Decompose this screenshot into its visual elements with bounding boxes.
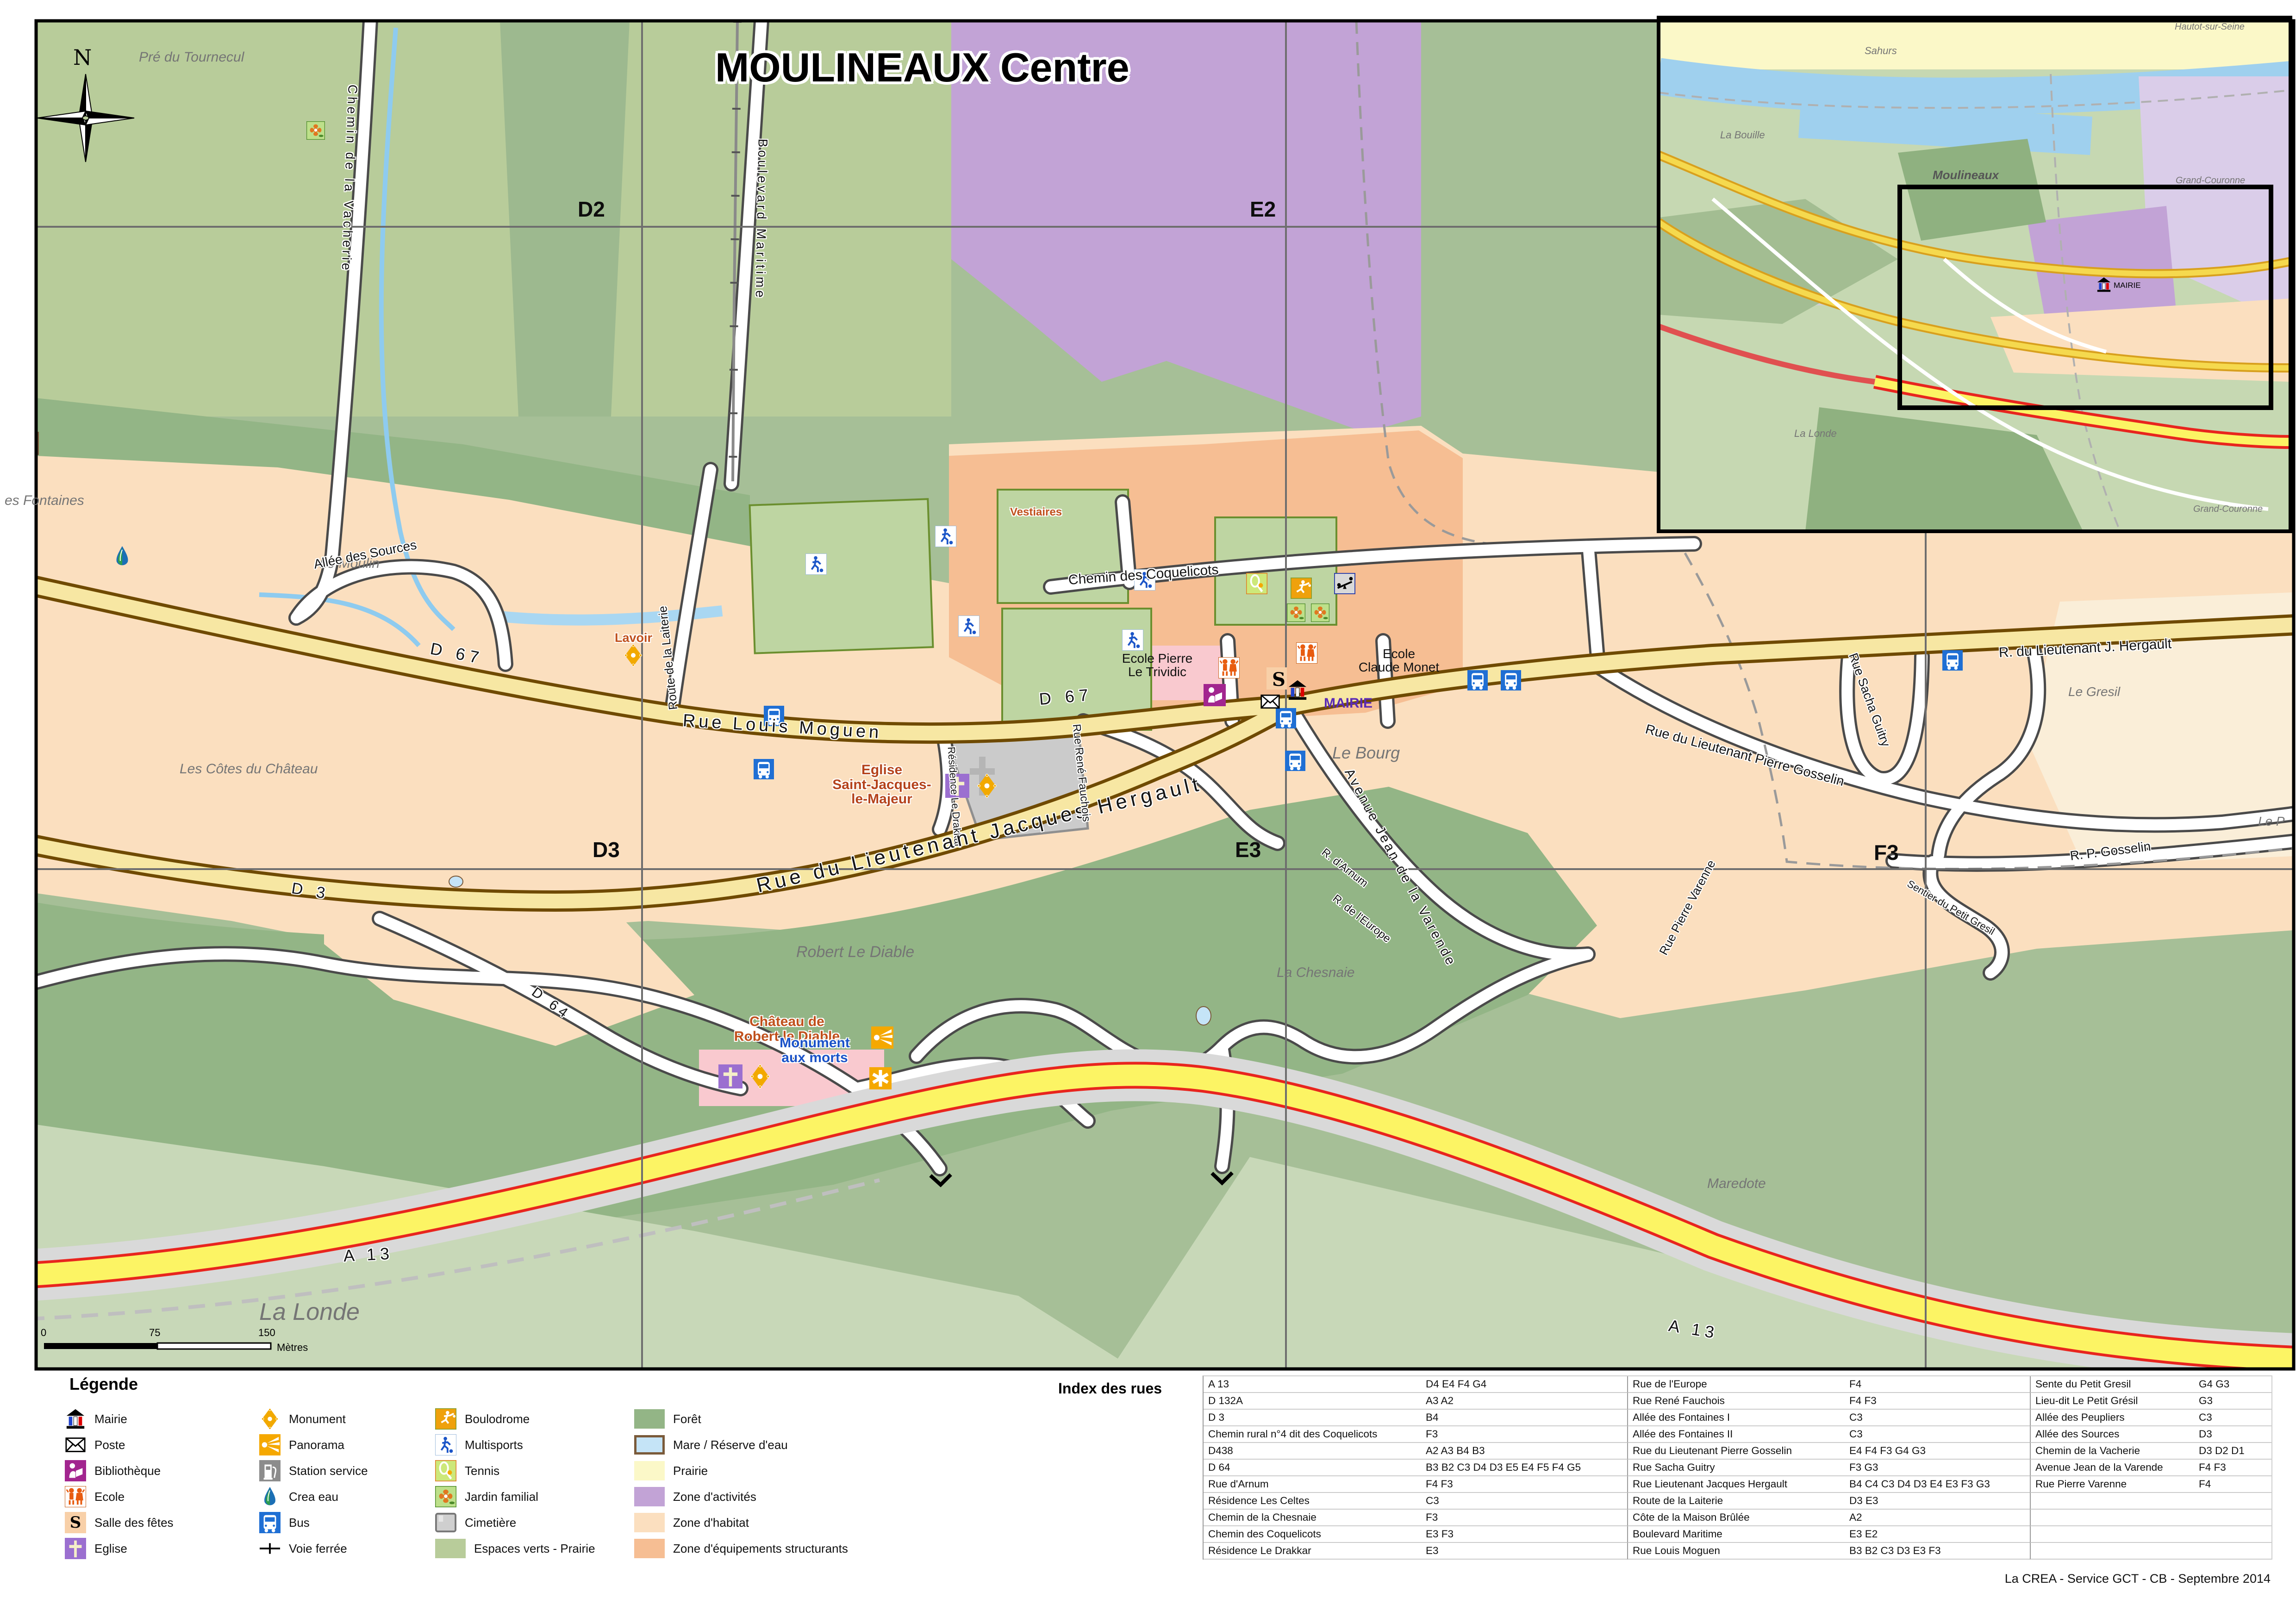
- legend-label: Ecole: [94, 1490, 125, 1504]
- index-name: Lieu-dit Le Petit Grésil: [2030, 1393, 2194, 1410]
- legend-label: Salle des fêtes: [94, 1516, 174, 1530]
- inset-mairie-label: MAIRIE: [2114, 281, 2141, 290]
- poi-monument-line1: Monument: [759, 1036, 870, 1051]
- legend-label: Poste: [94, 1438, 125, 1452]
- inset-moulineaux: Moulineaux: [1933, 169, 1999, 181]
- index-refs: B4: [1421, 1410, 1627, 1426]
- legend-item-panorama: Panorama: [259, 1432, 435, 1458]
- foret-swatch: [634, 1409, 665, 1429]
- poi-mairie-label: MAIRIE: [1324, 696, 1373, 711]
- index-name: Rue René Fauchois: [1627, 1393, 1845, 1410]
- legend-item-espaces-verts: Espaces verts - Prairie: [435, 1536, 634, 1561]
- inset-hautot-sur-seine: Hautot-sur-Seine: [2175, 22, 2245, 32]
- legend-item-poste: Poste: [65, 1432, 259, 1458]
- legend-item-tennis: Tennis: [435, 1458, 634, 1484]
- bus-icon: [1276, 708, 1296, 728]
- eglise-icon: [65, 1538, 86, 1559]
- playground-icon: [1334, 573, 1355, 594]
- bibliotheque-icon: [65, 1460, 86, 1481]
- legend-label: Tennis: [465, 1464, 499, 1478]
- poi-eglise-line3: le-Majeur: [810, 792, 954, 807]
- legend-column-1: Mairie Poste Bibliothèque Ecole SSalle d…: [65, 1406, 259, 1561]
- index-refs: F4 F3: [1845, 1393, 2030, 1410]
- index-refs: B3 B2 C3 D3 E3 F3: [1845, 1543, 2030, 1560]
- index-refs: F4: [1845, 1376, 2030, 1393]
- index-refs: G3: [2194, 1393, 2271, 1410]
- index-name: Allée des Fontaines II: [1627, 1426, 1845, 1443]
- legend-label: Cimetière: [465, 1516, 516, 1530]
- mairie-icon: [65, 1408, 86, 1430]
- poi-chateau-line1: Château de: [715, 1014, 859, 1029]
- legend-item-monument: Monument: [259, 1406, 435, 1432]
- legend-label: Voie ferrée: [289, 1542, 347, 1556]
- legend-label: Espaces verts - Prairie: [474, 1542, 595, 1556]
- pond-1: [449, 876, 463, 887]
- index-name: D 3: [1204, 1410, 1421, 1426]
- grid-label-f3: F3: [1874, 841, 1899, 864]
- zone-activites-swatch: [634, 1487, 665, 1506]
- ecole-icon: [1296, 642, 1317, 664]
- map-sheet: MOULINEAUX Centre N D2 E2 D3 E3 F3 Pré d…: [0, 0, 2296, 1623]
- tennis-icon: [435, 1460, 456, 1481]
- legend-item-crea-eau: Crea eau: [259, 1484, 435, 1510]
- inset-grand-couronne-1: Grand-Couronne: [2176, 176, 2245, 186]
- crea-eau-icon: [259, 1486, 281, 1507]
- index-empty: [2030, 1543, 2194, 1560]
- legend-item-eglise: Eglise: [65, 1536, 259, 1561]
- mare: [9, 433, 38, 454]
- poi-monument-line2: aux morts: [759, 1051, 870, 1065]
- street-boulevard-maritime: Boulevard Maritime: [753, 138, 769, 300]
- legend-item-prairie: Prairie: [634, 1458, 1004, 1484]
- legend-label: Panorama: [289, 1438, 344, 1452]
- legend-title: Légende: [69, 1374, 1046, 1394]
- index-refs: G4 G3: [2194, 1376, 2271, 1393]
- legend-label: Eglise: [94, 1542, 127, 1556]
- inset-sahurs: Sahurs: [1865, 45, 1897, 56]
- place-la-chesnaie: La Chesnaie: [1277, 965, 1354, 980]
- poi-salle-des-fetes-s: S: [1272, 670, 1285, 690]
- legend-item-salle-des-fetes: SSalle des fêtes: [65, 1510, 259, 1536]
- legend-item-voie-ferree: Voie ferrée: [259, 1536, 435, 1561]
- index-refs: F4 F3: [1421, 1476, 1627, 1493]
- place-pre-du-tournecul: Pré du Tournecul: [139, 50, 244, 65]
- place-es-fontaines: es Fontaines: [5, 493, 84, 508]
- legend-column-2: Monument Panorama Station service Crea e…: [259, 1406, 435, 1561]
- index-name: D438: [1204, 1443, 1421, 1460]
- index-name: Rue d'Arnum: [1204, 1476, 1421, 1493]
- bus-icon: [1501, 670, 1521, 690]
- place-le-gresil: Le Gresil: [2068, 685, 2120, 698]
- index-refs: C3: [2194, 1410, 2271, 1426]
- index-table: A 13D4 E4 F4 G4Rue de l'EuropeF4Sente du…: [1203, 1375, 2272, 1560]
- legend-label: Mare / Réserve d'eau: [673, 1438, 788, 1452]
- voie-ferree-icon: [259, 1538, 281, 1559]
- monument-aux-morts-icon: [869, 1067, 892, 1089]
- panorama-icon: [871, 1026, 893, 1049]
- legend-item-multisports: Multisports: [435, 1432, 634, 1458]
- index-refs: D3: [2194, 1426, 2271, 1443]
- inset-la-londe: La Londe: [1794, 428, 1837, 439]
- index-refs: F3: [1421, 1426, 1627, 1443]
- panorama-icon: [259, 1434, 281, 1455]
- index-name: Rue Pierre Varenne: [2030, 1476, 2194, 1493]
- monument-icon: [259, 1408, 281, 1430]
- ecole-trividic-line1: Ecole Pierre: [1092, 652, 1222, 665]
- index-refs: A2 A3 B4 B3: [1421, 1443, 1627, 1460]
- scale-unit: Mètres: [277, 1342, 308, 1353]
- ecole-trividic-line2: Le Trividic: [1092, 665, 1222, 678]
- cimetiere-icon: [435, 1512, 456, 1533]
- legend-label: Monument: [289, 1412, 346, 1426]
- index-refs: E4 F4 F3 G4 G3: [1845, 1443, 2030, 1460]
- station-service-icon: [259, 1460, 281, 1481]
- index-refs: D4 E4 F4 G4: [1421, 1376, 1627, 1393]
- legend-item-jardin-familial: Jardin familial: [435, 1484, 634, 1510]
- index-name: Rue de l'Europe: [1627, 1376, 1845, 1393]
- legend-item-bibliotheque: Bibliothèque: [65, 1458, 259, 1484]
- legend-label: Jardin familial: [465, 1490, 538, 1504]
- poi-lavoir-label: Lavoir: [615, 631, 652, 644]
- inset-map: [1659, 18, 2290, 531]
- index-name: Côte de la Maison Brûlée: [1627, 1510, 1845, 1526]
- index-refs: F4: [2194, 1476, 2271, 1493]
- grid-label-e3: E3: [1235, 839, 1261, 861]
- legend-label: Station service: [289, 1464, 368, 1478]
- bus-icon: [1285, 751, 1305, 771]
- index-refs: B4 C4 C3 D4 D3 E4 E3 F3 G3: [1845, 1476, 2030, 1493]
- index-name: Avenue Jean de la Varende: [2030, 1460, 2194, 1476]
- inset-la-bouille: La Bouille: [1720, 130, 1765, 140]
- jardin-familial-icon: [435, 1486, 456, 1507]
- poste-icon: [1261, 695, 1279, 708]
- poi-eglise-label: Eglise Saint-Jacques- le-Majeur: [810, 763, 954, 807]
- index-refs: E3: [1421, 1543, 1627, 1560]
- index-refs: D3 D2 D1: [2194, 1443, 2271, 1460]
- boulodrome-icon: [435, 1408, 456, 1430]
- legend-column-4: Forêt Mare / Réserve d'eau Prairie Zone …: [634, 1406, 1004, 1561]
- eglise-icon: [718, 1064, 742, 1088]
- index-name: Allée des Fontaines I: [1627, 1410, 1845, 1426]
- map-title: MOULINEAUX Centre: [715, 44, 1129, 91]
- legend-label: Mairie: [94, 1412, 127, 1426]
- index-refs: D3 E3: [1845, 1493, 2030, 1510]
- compass-north-label: N: [73, 46, 92, 68]
- legend-label: Forêt: [673, 1412, 701, 1426]
- index-name: Chemin des Coquelicots: [1204, 1526, 1421, 1543]
- index-name: Chemin de la Vacherie: [2030, 1443, 2194, 1460]
- legend-label: Bibliothèque: [94, 1464, 161, 1478]
- index-empty: [2030, 1493, 2194, 1510]
- espaces-verts-swatch: [435, 1539, 466, 1558]
- jardin-familial-icon: [306, 121, 325, 140]
- poi-eglise-line1: Eglise: [810, 763, 954, 777]
- index-name: A 13: [1204, 1376, 1421, 1393]
- place-le-bourg: Le Bourg: [1332, 744, 1400, 762]
- index-name: Rue Lieutenant Jacques Hergault: [1627, 1476, 1845, 1493]
- index-empty: [2194, 1526, 2271, 1543]
- multisports-icon: [435, 1434, 456, 1455]
- poste-icon: [65, 1434, 86, 1455]
- index-name: Allée des Sources: [2030, 1426, 2194, 1443]
- index-name: Sente du Petit Gresil: [2030, 1376, 2194, 1393]
- place-maredote: Maredote: [1707, 1176, 1766, 1191]
- prairie-swatch: [634, 1461, 665, 1480]
- index-name: Rue du Lieutenant Pierre Gosselin: [1627, 1443, 1845, 1460]
- index-refs: F4 F3: [2194, 1460, 2271, 1476]
- multisports-icon: [935, 526, 956, 547]
- salle-des-fetes-icon: S: [65, 1512, 86, 1533]
- legend-label: Zone d'habitat: [673, 1516, 749, 1530]
- index-refs: C3: [1845, 1426, 2030, 1443]
- index-refs: C3: [1421, 1493, 1627, 1510]
- scale-tick-0: 0: [41, 1327, 46, 1338]
- legend-label: Zone d'activités: [673, 1490, 756, 1504]
- legend: Légende Mairie Poste Bibliothèque Ecole …: [65, 1374, 1046, 1561]
- multisports-icon: [805, 553, 827, 575]
- tennis-icon: [1246, 573, 1267, 594]
- legend-item-station-service: Station service: [259, 1458, 435, 1484]
- place-robert-le-diable: Robert Le Diable: [796, 944, 914, 961]
- inset-grand-couronne-2: Grand-Couronne: [2193, 504, 2263, 514]
- poi-eglise-line2: Saint-Jacques-: [810, 777, 954, 792]
- mare-swatch: [634, 1435, 665, 1455]
- index-name: Boulevard Maritime: [1627, 1526, 1845, 1543]
- place-la-londe: La Londe: [259, 1300, 360, 1325]
- multisports-icon: [958, 616, 980, 637]
- index-refs: F3 G3: [1845, 1460, 2030, 1476]
- boulodrome-icon: [1291, 578, 1312, 599]
- index-refs: A2: [1845, 1510, 2030, 1526]
- grid-label-d2: D2: [578, 198, 605, 220]
- legend-item-mare: Mare / Réserve d'eau: [634, 1432, 1004, 1458]
- bus-icon: [1942, 650, 1963, 671]
- index-refs: E3 F3: [1421, 1526, 1627, 1543]
- index-name: Rue Louis Moguen: [1627, 1543, 1845, 1560]
- legend-label: Crea eau: [289, 1490, 338, 1504]
- legend-item-zone-habitat: Zone d'habitat: [634, 1510, 1004, 1536]
- index-name: Chemin rural n°4 dit des Coquelicots: [1204, 1426, 1421, 1443]
- ecole-monet-line1: Ecole: [1325, 647, 1473, 660]
- scale-tick-75: 75: [149, 1327, 160, 1338]
- index-name: Route de la Laiterie: [1627, 1493, 1845, 1510]
- poi-monument-aux-morts-label: Monument aux morts: [759, 1036, 870, 1065]
- poi-ecole-trividic-label: Ecole Pierre Le Trividic: [1092, 652, 1222, 679]
- index-refs: A3 A2: [1421, 1393, 1627, 1410]
- index-refs: B3 B2 C3 D4 D3 E5 E4 F5 F4 G5: [1421, 1460, 1627, 1476]
- index-empty: [2194, 1510, 2271, 1526]
- bus-icon: [754, 759, 774, 779]
- street-a13-west: A 13: [343, 1244, 394, 1264]
- scale-tick-150: 150: [258, 1327, 275, 1338]
- index-name: Chemin de la Chesnaie: [1204, 1510, 1421, 1526]
- legend-label: Bus: [289, 1516, 310, 1530]
- zone-habitat-swatch: [634, 1513, 665, 1532]
- legend-item-ecole: Ecole: [65, 1484, 259, 1510]
- index-name: Rue Sacha Guitry: [1627, 1460, 1845, 1476]
- place-les-cotes-du-chateau: Les Côtes du Château: [180, 762, 318, 777]
- legend-label: Prairie: [673, 1464, 708, 1478]
- scale-bar: [44, 1343, 271, 1349]
- index-title: Index des rues: [1058, 1380, 1162, 1397]
- index-empty: [2194, 1493, 2271, 1510]
- index-name: Résidence Le Drakkar: [1204, 1543, 1421, 1560]
- legend-item-mairie: Mairie: [65, 1406, 259, 1432]
- legend-label: Boulodrome: [465, 1412, 530, 1426]
- index-refs: F3: [1421, 1510, 1627, 1526]
- pond-2: [1196, 1007, 1211, 1025]
- forest-vacherie-strip: [500, 21, 630, 417]
- legend-item-foret: Forêt: [634, 1406, 1004, 1432]
- zone-equipements-swatch: [634, 1539, 665, 1558]
- index-name: D 64: [1204, 1460, 1421, 1476]
- legend-item-zone-activites: Zone d'activités: [634, 1484, 1004, 1510]
- legend-column-3: Boulodrome Multisports Tennis Jardin fam…: [435, 1406, 634, 1561]
- index-name: Allée des Peupliers: [2030, 1410, 2194, 1426]
- grid-label-d3: D3: [593, 839, 620, 861]
- bus-icon: [259, 1512, 281, 1533]
- ecole-monet-line2: Claude Monet: [1325, 660, 1473, 674]
- index-empty: [2194, 1543, 2271, 1560]
- attribution: La CREA - Service GCT - CB - Septembre 2…: [2005, 1572, 2271, 1586]
- legend-item-cimetiere: Cimetière: [435, 1510, 634, 1536]
- jardin-familial-icon: [1311, 603, 1329, 622]
- index-refs: C3: [1845, 1410, 2030, 1426]
- index-empty: [2030, 1526, 2194, 1543]
- multisports-icon: [1122, 629, 1143, 651]
- index-name: Résidence Les Celtes: [1204, 1493, 1421, 1510]
- index-empty: [2030, 1510, 2194, 1526]
- index-name: D 132A: [1204, 1393, 1421, 1410]
- ecole-icon: [65, 1486, 86, 1507]
- legend-label: Multisports: [465, 1438, 523, 1452]
- legend-item-bus: Bus: [259, 1510, 435, 1536]
- bibliotheque-icon: [1204, 684, 1226, 706]
- poi-vestiaires-label: Vestiaires: [1010, 506, 1062, 518]
- index-refs: E3 E2: [1845, 1526, 2030, 1543]
- poi-ecole-monet-label: Ecole Claude Monet: [1325, 647, 1473, 674]
- jardin-familial-icon: [1287, 603, 1305, 622]
- place-le-petit-gresil-cut: Le P: [2258, 815, 2285, 828]
- legend-item-zone-equipements: Zone d'équipements structurants: [634, 1536, 1004, 1561]
- grid-label-e2: E2: [1250, 198, 1276, 220]
- legend-label: Zone d'équipements structurants: [673, 1542, 848, 1556]
- legend-item-boulodrome: Boulodrome: [435, 1406, 634, 1432]
